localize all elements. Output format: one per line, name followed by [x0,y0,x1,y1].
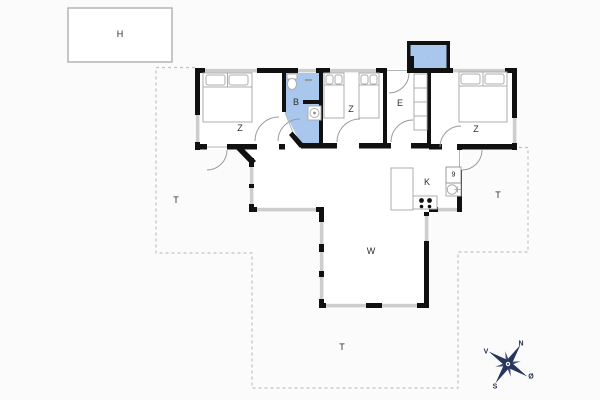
door-terrace-west [207,150,227,170]
label-bathroom: B [293,97,299,107]
bed-double-left [203,73,252,122]
bath-sink [305,79,312,81]
compass-west-label: V [484,349,489,356]
label-utility-box: 9 [452,172,456,179]
label-living-room: W [367,246,376,256]
compass-rose [476,332,540,396]
washing-machine [308,106,321,120]
kitchen-sink [446,183,461,196]
label-outbuilding: H [117,29,124,39]
label-terrace-east: T [495,190,501,200]
compass-south-label: S [493,384,498,391]
floor-plan-canvas [0,0,600,400]
bed-single-1 [324,73,344,118]
compass-north-label: N [518,341,523,348]
label-terrace-south: T [339,342,345,352]
label-annex-mark: · [427,54,429,60]
wardrobe [414,74,427,130]
bed-single-2 [359,73,379,118]
bed-double-right [459,72,507,122]
label-bedroom-middle: Z [348,104,354,114]
toilet [287,74,297,90]
label-terrace-west: T [173,195,179,205]
compass-east-label: Ø [528,374,533,381]
label-entrance: E [397,98,403,108]
label-bedroom-left: Z [237,123,243,133]
label-bedroom-right: Z [473,124,479,134]
door-kitchen-terrace [462,150,482,170]
label-kitchen: K [424,177,430,187]
